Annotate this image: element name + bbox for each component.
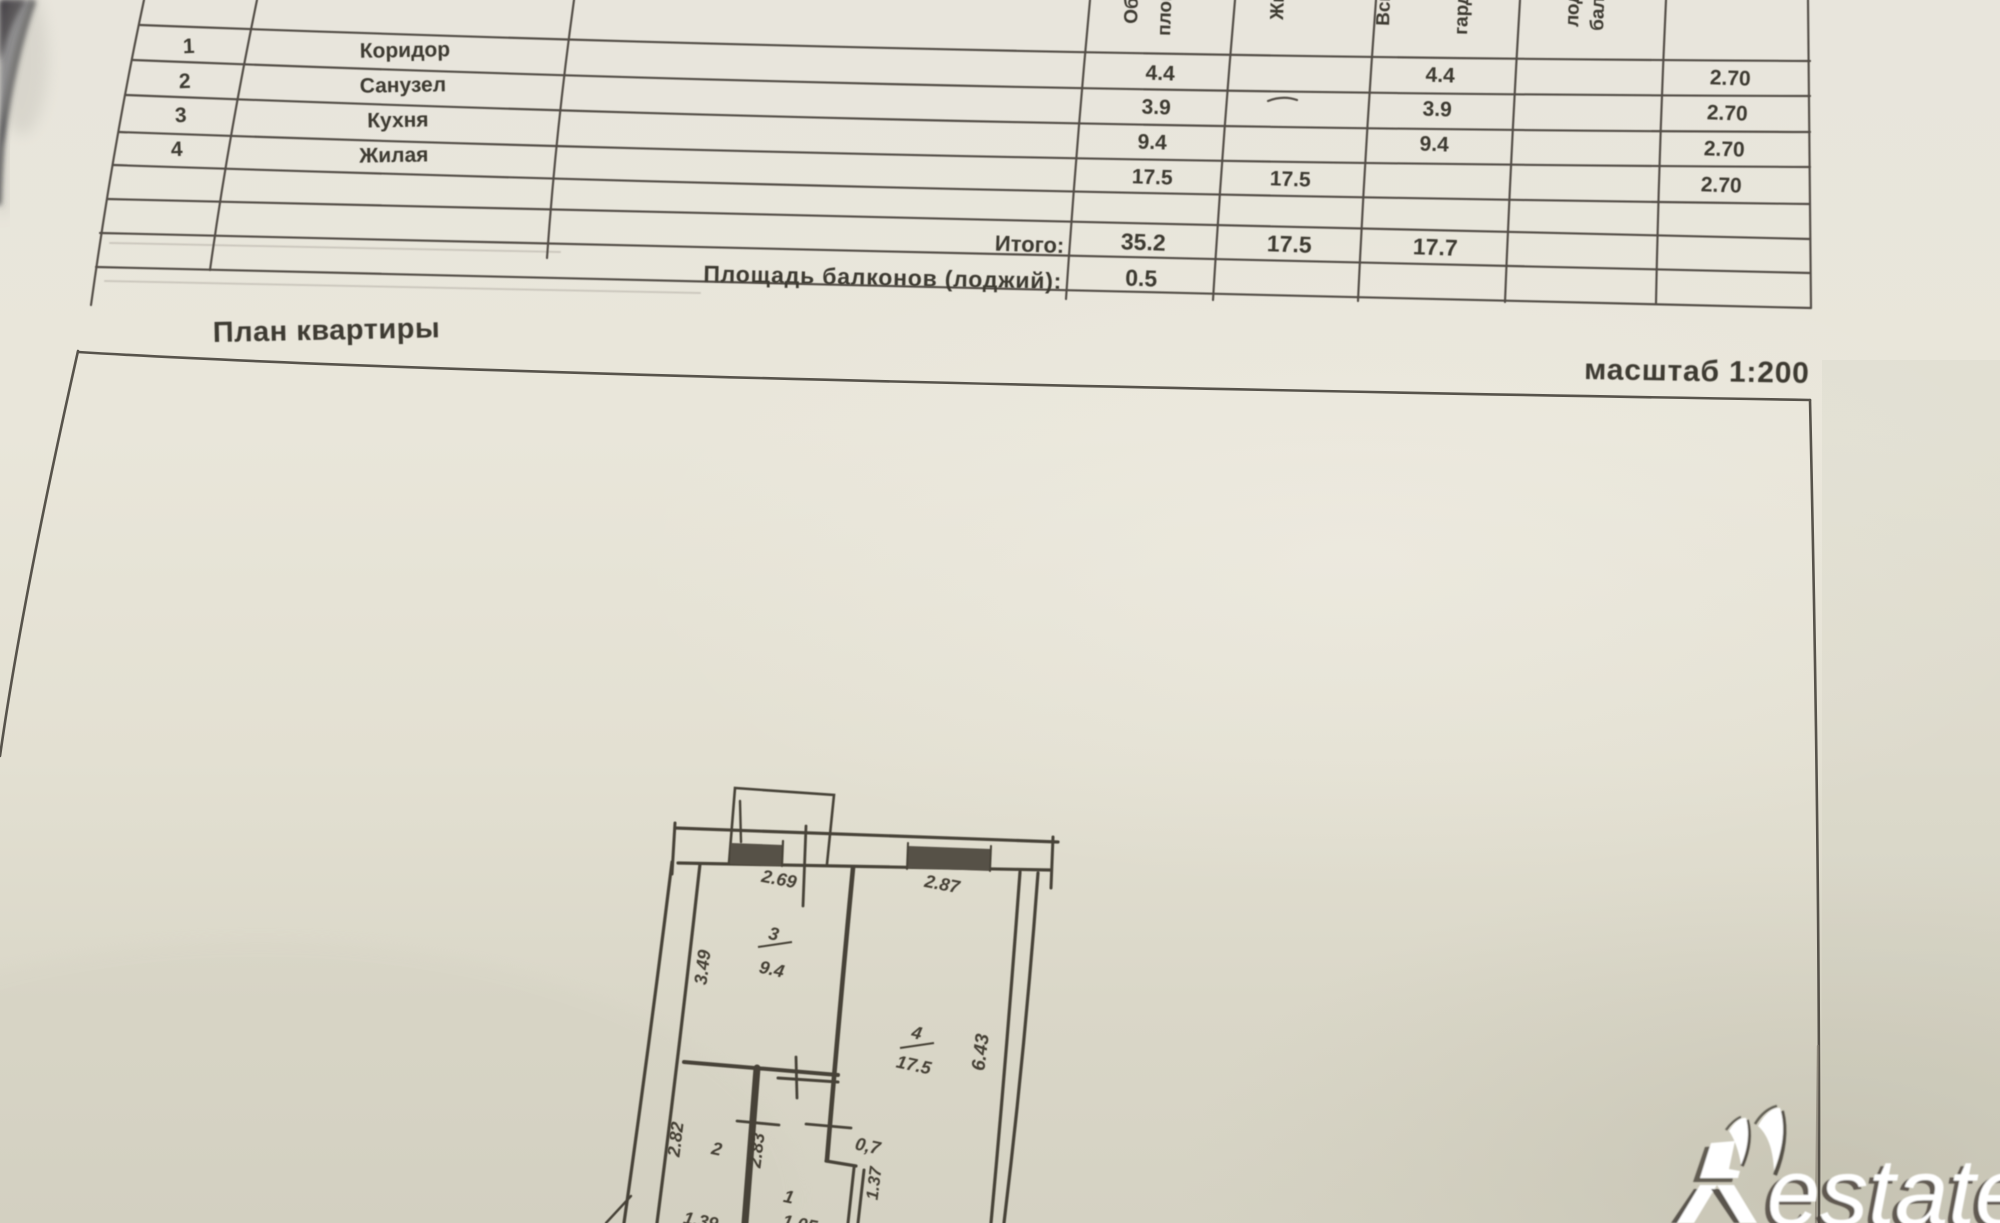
svg-text:17.5: 17.5	[1269, 167, 1311, 191]
svg-text:Всп.: Всп.	[1373, 0, 1395, 26]
svg-text:4.4: 4.4	[1425, 64, 1455, 88]
svg-text:2.70: 2.70	[1709, 66, 1751, 90]
svg-text:4: 4	[171, 138, 184, 161]
svg-text:estate: estate	[1767, 1139, 2000, 1223]
svg-text:2.70: 2.70	[1706, 101, 1748, 125]
svg-text:3.49: 3.49	[690, 949, 714, 986]
svg-text:площадь: площадь	[1154, 0, 1178, 36]
svg-text:лодж.: лодж.	[1562, 0, 1585, 27]
svg-text:балк.: балк.	[1587, 0, 1610, 31]
svg-text:3.9: 3.9	[1422, 98, 1452, 122]
svg-text:2: 2	[179, 70, 191, 93]
svg-text:9.4: 9.4	[1137, 131, 1167, 155]
svg-text:Общая: Общая	[1121, 0, 1144, 24]
svg-text:17.7: 17.7	[1412, 233, 1458, 261]
svg-text:4.4: 4.4	[1145, 62, 1175, 86]
svg-text:3.9: 3.9	[1141, 96, 1171, 120]
svg-text:2.70: 2.70	[1703, 137, 1745, 161]
svg-text:Итого:: Итого:	[994, 231, 1064, 258]
svg-text:План квартиры: План квартиры	[212, 312, 440, 349]
svg-text:35.2: 35.2	[1120, 228, 1166, 256]
svg-text:2.70: 2.70	[1700, 173, 1742, 197]
svg-text:масштаб 1:200: масштаб 1:200	[1584, 353, 1810, 390]
svg-text:Жилая: Жилая	[358, 143, 429, 167]
svg-text:Кухня: Кухня	[367, 108, 429, 132]
svg-text:17.5: 17.5	[1131, 165, 1173, 189]
svg-text:3: 3	[175, 104, 187, 127]
svg-text:Коридор: Коридор	[360, 38, 451, 63]
svg-text:Санузел: Санузел	[360, 73, 447, 98]
svg-text:гард.: гард.	[1451, 0, 1474, 35]
svg-text:1: 1	[183, 35, 196, 58]
svg-text:0.5: 0.5	[1125, 264, 1158, 291]
svg-text:9.4: 9.4	[1419, 133, 1449, 157]
svg-text:Жилая: Жилая	[1267, 0, 1290, 21]
svg-text:17.5: 17.5	[1266, 230, 1312, 258]
